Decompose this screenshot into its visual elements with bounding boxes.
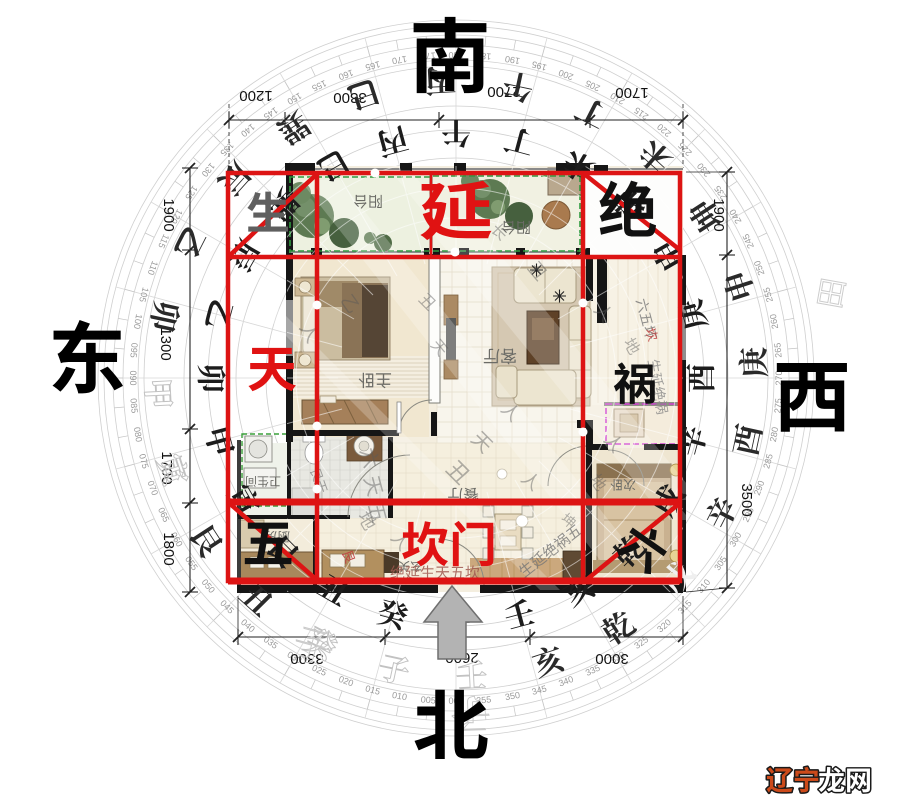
svg-text:265: 265 — [772, 342, 783, 358]
svg-text:1900: 1900 — [160, 198, 177, 231]
svg-text:090: 090 — [128, 370, 138, 385]
svg-text:095: 095 — [128, 342, 139, 358]
svg-text:1300: 1300 — [157, 327, 174, 360]
svg-text:3300: 3300 — [290, 650, 323, 667]
svg-text:1700: 1700 — [615, 84, 648, 101]
svg-text:3000: 3000 — [595, 650, 628, 667]
svg-text:1200: 1200 — [239, 87, 272, 104]
svg-text:005: 005 — [420, 694, 436, 705]
svg-text:1800: 1800 — [160, 532, 177, 565]
svg-text:085: 085 — [128, 398, 139, 414]
svg-text:3500: 3500 — [738, 483, 755, 516]
